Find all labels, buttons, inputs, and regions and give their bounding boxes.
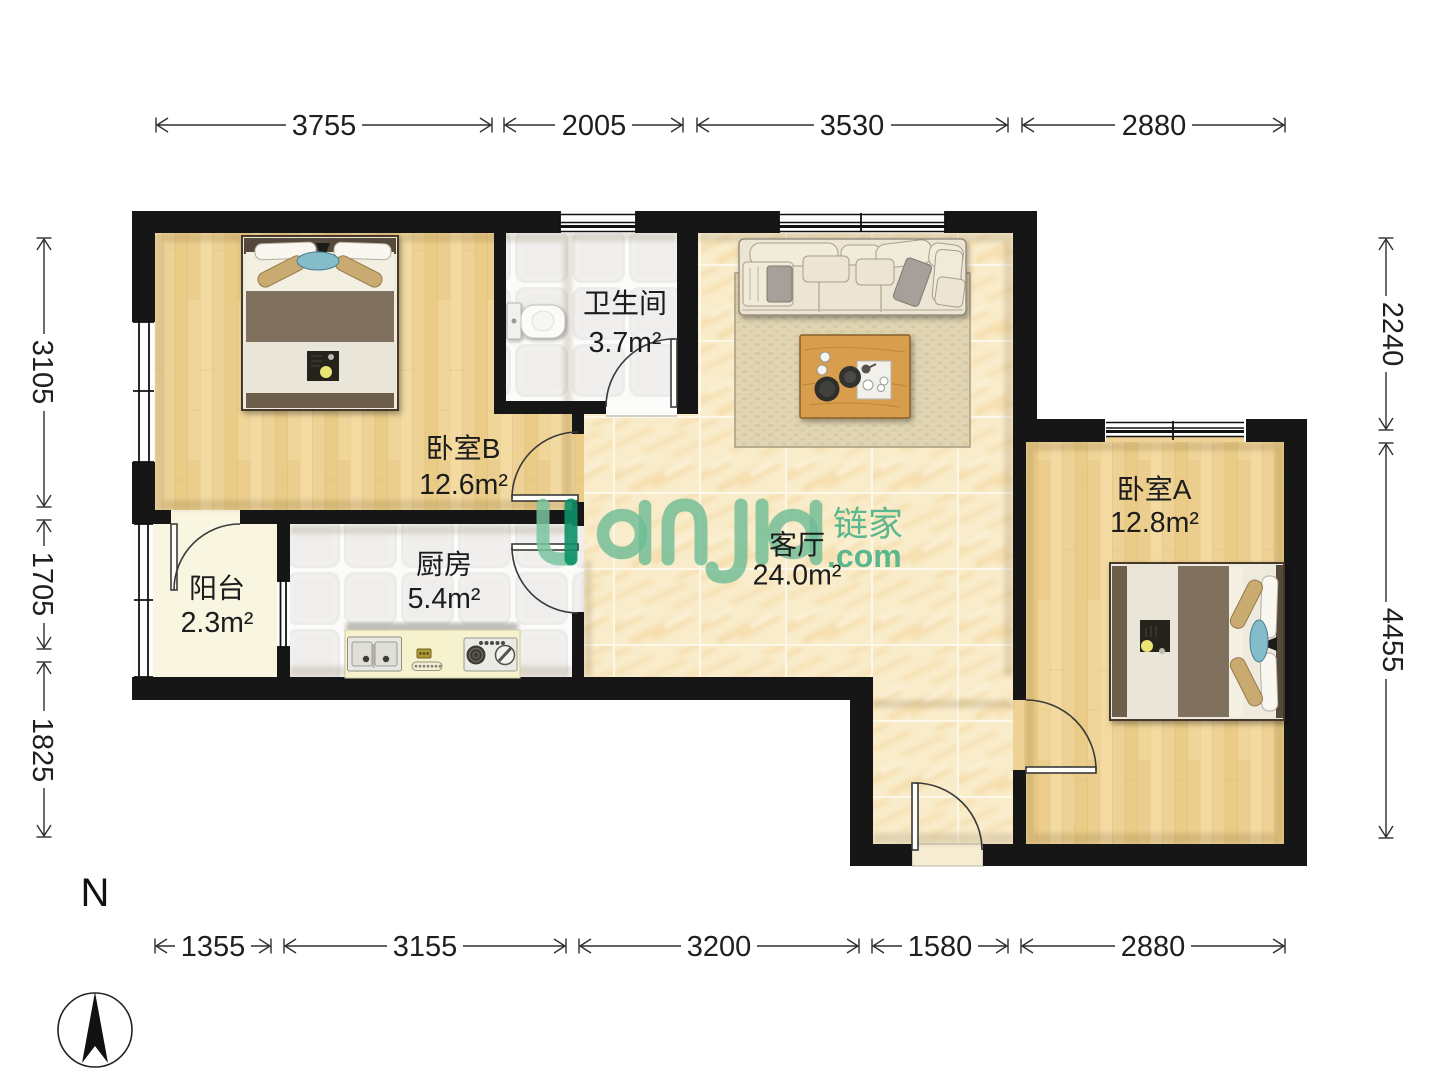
svg-text:3200: 3200 bbox=[687, 931, 752, 963]
svg-text:4455: 4455 bbox=[1376, 608, 1408, 673]
svg-text:3155: 3155 bbox=[393, 931, 458, 963]
svg-text:12.8m²: 12.8m² bbox=[1110, 507, 1199, 539]
svg-text:1580: 1580 bbox=[908, 931, 973, 963]
svg-text:2240: 2240 bbox=[1376, 302, 1408, 367]
svg-text:B: B bbox=[482, 433, 501, 464]
svg-text:A: A bbox=[1173, 474, 1192, 505]
svg-text:3.7m²: 3.7m² bbox=[589, 327, 662, 359]
svg-text:3530: 3530 bbox=[820, 110, 885, 142]
svg-text:24.0m²: 24.0m² bbox=[753, 560, 842, 592]
svg-text:N: N bbox=[81, 871, 110, 915]
svg-text:1825: 1825 bbox=[26, 718, 58, 783]
svg-text:1705: 1705 bbox=[26, 552, 58, 617]
svg-text:2880: 2880 bbox=[1122, 110, 1187, 142]
svg-text:2005: 2005 bbox=[562, 110, 627, 142]
svg-text:3755: 3755 bbox=[292, 110, 357, 142]
svg-text:1355: 1355 bbox=[181, 931, 246, 963]
svg-text:2.3m²: 2.3m² bbox=[181, 607, 254, 639]
svg-text:3105: 3105 bbox=[26, 340, 58, 405]
svg-text:12.6m²: 12.6m² bbox=[419, 469, 508, 501]
svg-text:2880: 2880 bbox=[1121, 931, 1186, 963]
svg-text:5.4m²: 5.4m² bbox=[408, 583, 481, 615]
